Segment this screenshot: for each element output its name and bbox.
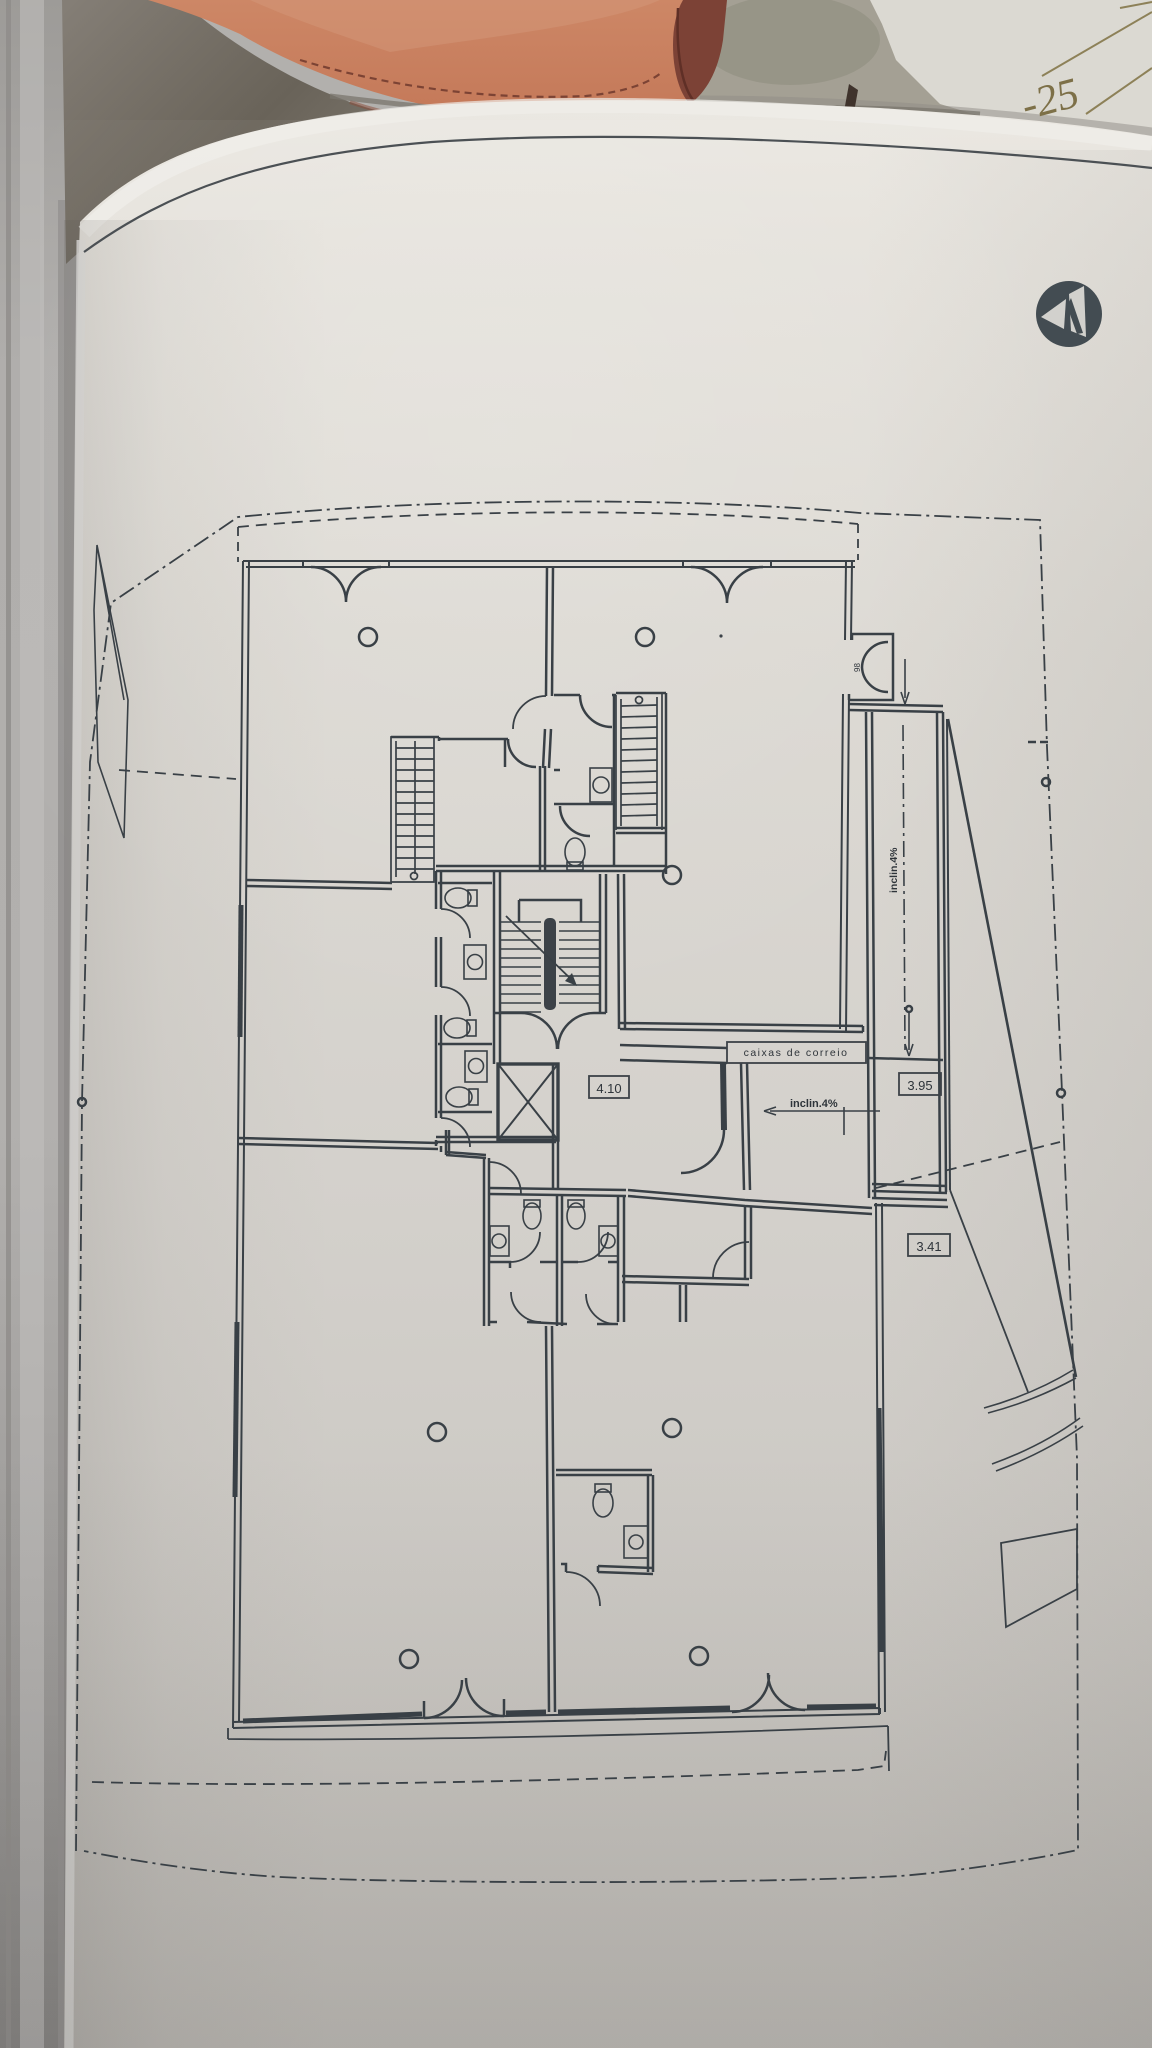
svg-text:98: 98 [853,663,862,672]
svg-text:inclin.4%: inclin.4% [888,847,900,893]
svg-text:3.95: 3.95 [907,1078,932,1093]
svg-text:4.10: 4.10 [596,1081,621,1096]
svg-text:caixas de correio: caixas de correio [744,1047,849,1059]
svg-text:inclin.4%: inclin.4% [790,1098,838,1110]
svg-text:3.41: 3.41 [916,1239,941,1254]
